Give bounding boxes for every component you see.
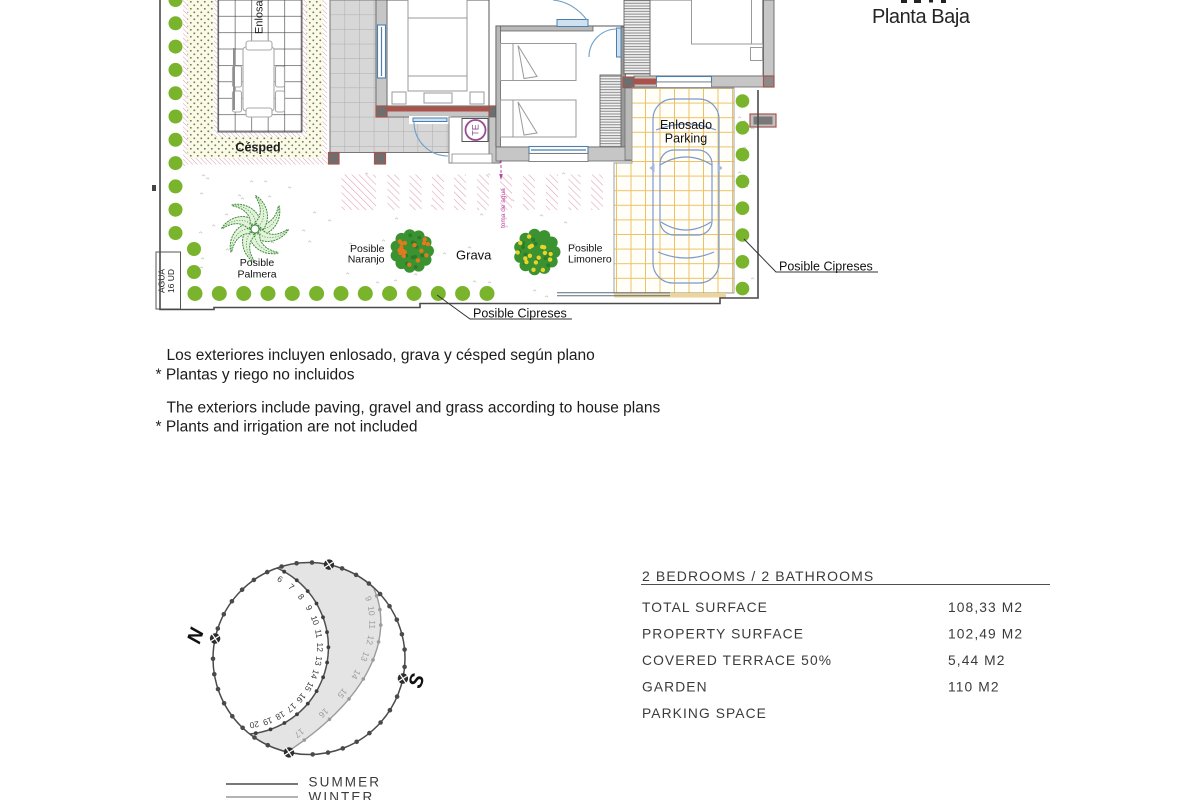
svg-text:11: 11 bbox=[367, 620, 377, 629]
svg-text:TE: TE bbox=[471, 124, 481, 136]
svg-text:GARDEN: GARDEN bbox=[642, 680, 708, 695]
svg-text:108,33 M2: 108,33 M2 bbox=[948, 600, 1023, 615]
svg-text:* Plants and irrigation are no: * Plants and irrigation are not included bbox=[156, 419, 418, 436]
svg-text:WINTER: WINTER bbox=[309, 790, 375, 800]
svg-text:* Plantas y riego no incluidos: * Plantas y riego no incluidos bbox=[156, 367, 355, 384]
svg-text:Césped: Césped bbox=[235, 141, 280, 155]
svg-text:12: 12 bbox=[315, 643, 325, 653]
svg-text:N: N bbox=[183, 625, 209, 646]
svg-text:Los exteriores incluyen enlosa: Los exteriores incluyen enlosado, grava … bbox=[167, 347, 595, 364]
svg-text:10: 10 bbox=[366, 605, 377, 616]
svg-text:20: 20 bbox=[249, 719, 260, 731]
svg-text:Parking: Parking bbox=[665, 132, 707, 146]
svg-text:SUMMER: SUMMER bbox=[309, 775, 382, 790]
svg-text:COVERED TERRACE 50%: COVERED TERRACE 50% bbox=[642, 653, 832, 668]
svg-text:110 M2: 110 M2 bbox=[948, 680, 1000, 695]
svg-text:TOTAL SURFACE: TOTAL SURFACE bbox=[642, 600, 768, 615]
svg-text:Posible: Posible bbox=[240, 257, 275, 269]
svg-text:Planta Baja: Planta Baja bbox=[872, 6, 971, 28]
svg-text:toma de agua: toma de agua bbox=[500, 188, 507, 228]
svg-text:Posible Cipreses: Posible Cipreses bbox=[779, 260, 873, 274]
svg-text:102,49 M2: 102,49 M2 bbox=[948, 627, 1023, 642]
svg-text:5,44 M2: 5,44 M2 bbox=[948, 653, 1006, 668]
svg-text:AGUA: AGUA bbox=[157, 269, 167, 293]
svg-text:Enlosado: Enlosado bbox=[254, 0, 266, 34]
svg-text:2 BEDROOMS / 2 BATHROOMS: 2 BEDROOMS / 2 BATHROOMS bbox=[642, 568, 874, 584]
svg-text:Naranjo: Naranjo bbox=[348, 254, 385, 266]
svg-text:Limonero: Limonero bbox=[568, 254, 612, 266]
svg-text:Grava: Grava bbox=[456, 248, 492, 263]
svg-text:S: S bbox=[404, 670, 429, 691]
svg-text:PROPERTY SURFACE: PROPERTY SURFACE bbox=[642, 627, 804, 642]
svg-text:The exteriors include paving,: The exteriors include paving, gravel and… bbox=[167, 400, 661, 417]
svg-text:Posible Cipreses: Posible Cipreses bbox=[473, 307, 567, 321]
svg-text:Palmera: Palmera bbox=[237, 269, 276, 281]
svg-text:PARKING SPACE: PARKING SPACE bbox=[642, 706, 767, 721]
svg-text:Enlosado: Enlosado bbox=[660, 118, 712, 132]
svg-text:16 UD: 16 UD bbox=[166, 269, 176, 293]
svg-text:13: 13 bbox=[313, 655, 325, 666]
